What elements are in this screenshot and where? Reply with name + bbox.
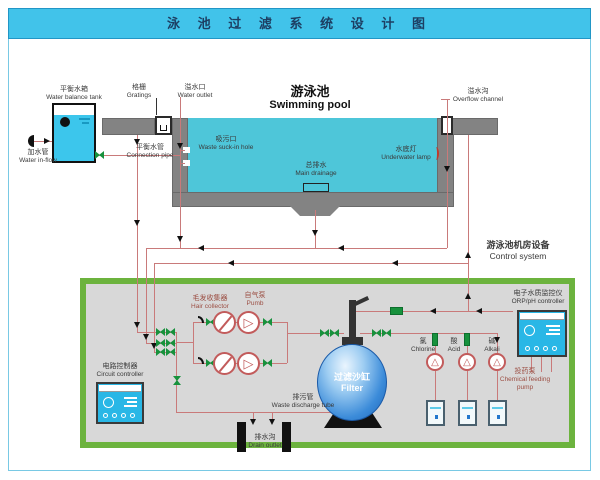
valve-icon	[372, 329, 381, 338]
valve-icon	[263, 359, 272, 368]
flow-arrow-icon	[476, 308, 482, 314]
display-line	[549, 329, 560, 331]
wave-mark	[82, 122, 89, 124]
dosing-pump: △	[458, 353, 476, 371]
valve-icon	[95, 151, 104, 160]
flow-arrow-icon	[269, 419, 275, 425]
flow-meter	[390, 307, 403, 315]
knob-icon	[130, 413, 135, 418]
display-line	[127, 401, 137, 403]
pool-floor	[172, 192, 454, 207]
grating-mark	[160, 125, 167, 131]
pool-deck-right	[452, 118, 498, 135]
pipe-segment	[180, 163, 185, 164]
flow-arrow-icon	[250, 419, 256, 425]
knob-icon	[103, 413, 108, 418]
drain-wall-left	[237, 422, 246, 452]
chemical-tank	[488, 400, 507, 426]
pipe-segment	[176, 412, 336, 413]
chemical-tank	[458, 400, 477, 426]
pipe-segment	[180, 97, 181, 248]
knob-icon	[525, 346, 530, 351]
orp-controller	[517, 310, 567, 357]
filter-label: 过滤沙缸 Filter	[317, 370, 387, 393]
strainer-mark	[216, 354, 234, 375]
dosing-pump: △	[426, 353, 444, 371]
strainer-mark	[216, 313, 234, 334]
display-line	[124, 397, 137, 399]
pipe-segment	[146, 248, 447, 249]
solenoid-valve-icon	[464, 333, 470, 346]
water-line	[492, 407, 503, 409]
flow-arrow-icon	[143, 334, 149, 340]
solenoid-valve-icon	[432, 333, 438, 346]
suction-foot	[435, 415, 438, 419]
pump-triangle-icon: ▷	[239, 313, 258, 332]
panel-header	[99, 385, 141, 392]
pipe-segment	[154, 263, 155, 352]
hair-collector	[213, 311, 236, 334]
flow-arrow-icon	[312, 230, 318, 236]
flow-arrow-icon	[465, 252, 471, 258]
pipe-segment	[551, 357, 552, 372]
valve-icon	[156, 328, 165, 337]
flow-arrow-icon	[338, 245, 344, 251]
diagram-canvas: 泳 池 过 滤 系 统 设 计 图 平衡水箱 Water balance tan…	[0, 0, 600, 480]
chemical-tank	[426, 400, 445, 426]
pipe-segment	[180, 150, 185, 151]
pipe-segment	[154, 263, 468, 264]
flow-arrow-icon	[494, 337, 500, 343]
valve-icon	[263, 318, 272, 327]
pump: ▷	[237, 352, 260, 375]
hair-collector	[213, 352, 236, 375]
flow-arrow-icon	[198, 245, 204, 251]
pipe-segment	[435, 371, 436, 400]
pipe-segment	[176, 332, 177, 412]
pump: ▷	[237, 311, 260, 334]
balance-tank	[52, 103, 96, 163]
pipe-segment	[531, 357, 532, 372]
dosing-pump: △	[488, 353, 506, 371]
gauge-icon	[524, 325, 535, 336]
knob-icon	[543, 346, 548, 351]
knob-icon	[552, 346, 557, 351]
gauge-icon	[103, 397, 114, 408]
pipe-segment	[146, 248, 147, 343]
panel-header	[520, 313, 564, 320]
main-drain-box	[303, 183, 329, 192]
pipe-segment	[287, 322, 288, 363]
flow-arrow-icon	[444, 166, 450, 172]
valve-icon	[330, 329, 339, 338]
pipe-segment	[447, 100, 448, 248]
knob-icon	[121, 413, 126, 418]
underwater-lamp-icon	[433, 147, 439, 160]
knob-icon	[534, 346, 539, 351]
drain-wall-right	[282, 422, 291, 452]
flow-arrow-icon	[228, 260, 234, 266]
knob-icon	[112, 413, 117, 418]
valve-icon	[382, 329, 391, 338]
flow-arrow-icon	[44, 138, 50, 144]
pipe-segment	[467, 371, 468, 400]
valve-icon	[172, 376, 181, 385]
valve-icon	[320, 329, 329, 338]
valve-icon	[156, 348, 165, 357]
pipe-segment	[176, 342, 193, 343]
flow-arrow-icon	[392, 260, 398, 266]
flow-arrow-icon	[134, 139, 140, 145]
display-line	[124, 405, 137, 407]
pipe-segment	[497, 371, 498, 400]
display-line	[546, 325, 560, 327]
wave-mark	[79, 118, 90, 120]
suction-foot	[497, 415, 500, 419]
flow-arrow-icon	[177, 236, 183, 242]
flow-arrow-icon	[134, 220, 140, 226]
circuit-controller	[96, 382, 144, 424]
pipe-segment	[193, 322, 194, 363]
valve-icon	[166, 348, 175, 357]
pipe-segment	[497, 333, 498, 353]
pipe-segment	[315, 210, 316, 248]
page-title: 泳 池 过 滤 系 统 设 计 图	[8, 8, 591, 39]
flow-arrow-icon	[430, 308, 436, 314]
display-line	[546, 333, 560, 335]
float-ball-icon	[60, 117, 70, 127]
inflow-faucet-icon	[28, 135, 34, 147]
flow-arrow-icon	[465, 293, 471, 299]
pipe-segment	[137, 135, 138, 332]
valve-icon	[166, 328, 175, 337]
water-line	[462, 407, 473, 409]
pool-water	[188, 118, 437, 193]
pool-deck-left	[102, 118, 155, 135]
water-line	[430, 407, 441, 409]
pipe-segment	[96, 155, 180, 156]
leader-line	[441, 99, 450, 100]
leader-line	[156, 98, 157, 115]
grating-box	[155, 116, 172, 135]
pipe-segment	[541, 357, 542, 372]
flow-arrow-icon	[134, 322, 140, 328]
pump-triangle-icon: ▷	[239, 354, 258, 373]
suction-foot	[467, 415, 470, 419]
valve-icon	[166, 339, 175, 348]
pipe-segment	[468, 135, 469, 311]
valve-icon	[156, 339, 165, 348]
flow-arrow-icon	[177, 143, 183, 149]
